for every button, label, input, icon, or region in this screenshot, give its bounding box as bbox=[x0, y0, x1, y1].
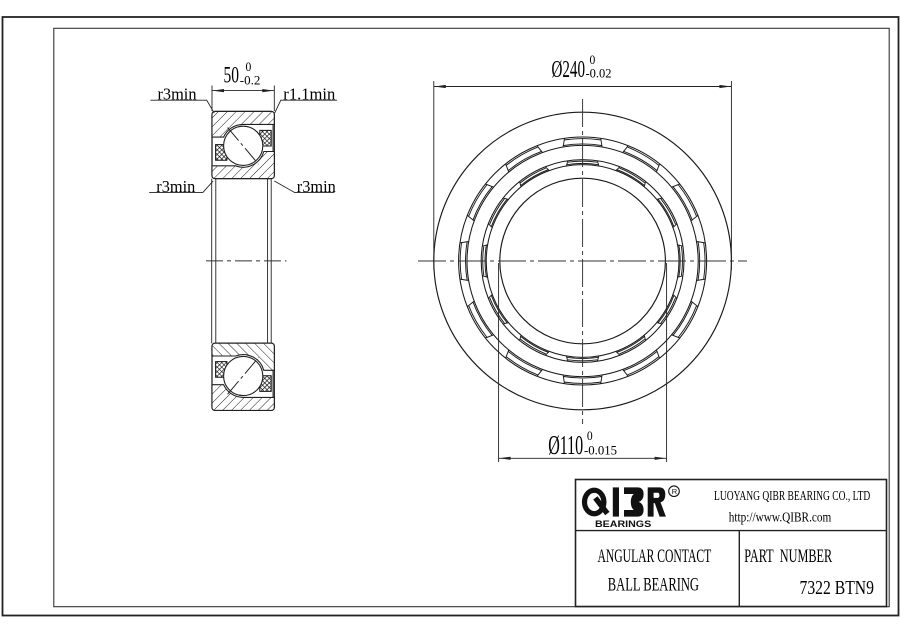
svg-text:BEARINGS: BEARINGS bbox=[595, 519, 651, 530]
svg-text:0: 0 bbox=[590, 53, 596, 67]
svg-text:-0.015: -0.015 bbox=[584, 444, 617, 458]
svg-text:R: R bbox=[672, 487, 678, 496]
svg-text:PART NUMBER: PART NUMBER bbox=[744, 546, 832, 567]
svg-text:Ø240: Ø240 bbox=[552, 57, 586, 83]
svg-text:50: 50 bbox=[224, 63, 240, 88]
svg-text:LUOYANG QIBR BEARING CO., LTD: LUOYANG QIBR BEARING CO., LTD bbox=[714, 489, 870, 504]
svg-text:ANGULAR CONTACT: ANGULAR CONTACT bbox=[598, 546, 712, 567]
svg-text:http://www.QIBR.com: http://www.QIBR.com bbox=[729, 511, 832, 526]
svg-text:0: 0 bbox=[587, 429, 593, 443]
svg-text:7322 BTN9: 7322 BTN9 bbox=[800, 577, 874, 599]
svg-text:-0.2: -0.2 bbox=[240, 73, 260, 87]
svg-text:BALL BEARING: BALL BEARING bbox=[608, 575, 699, 596]
svg-text:-0.02: -0.02 bbox=[586, 66, 612, 80]
svg-text:0: 0 bbox=[246, 60, 252, 74]
svg-text:Ø110: Ø110 bbox=[548, 429, 583, 460]
